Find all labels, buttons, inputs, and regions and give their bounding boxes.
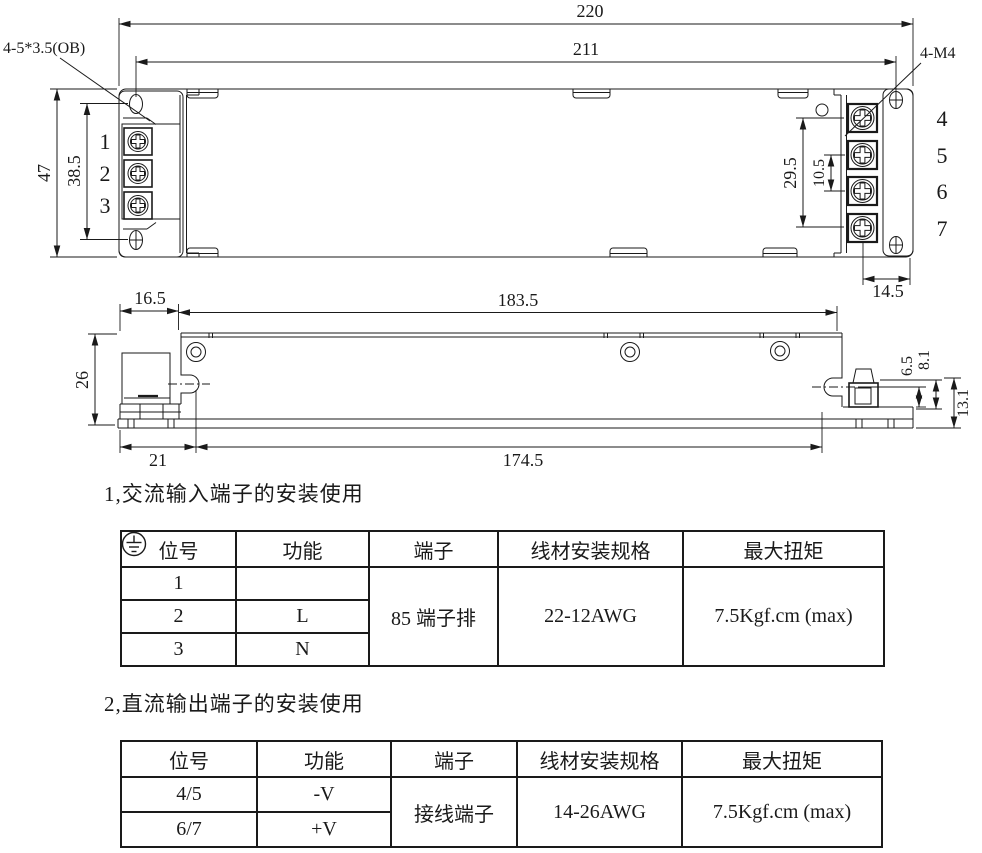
- svg-text:26: 26: [72, 371, 92, 389]
- col-header-terminal: 端子: [369, 531, 498, 567]
- position-cell: 3: [121, 633, 236, 666]
- svg-text:14.5: 14.5: [872, 281, 904, 301]
- svg-text:220: 220: [577, 1, 604, 21]
- screw-terminal-6: [851, 180, 874, 203]
- col-header-wire-spec: 线材安装规格: [517, 741, 682, 777]
- table-header-row: 位号 功能 端子 线材安装规格 最大扭矩: [121, 531, 884, 567]
- svg-text:38.5: 38.5: [64, 155, 84, 187]
- bottom-edge-tabs: [187, 248, 797, 257]
- svg-text:21: 21: [149, 450, 167, 470]
- side-input-housing: [120, 353, 181, 419]
- dim-211: 211: [136, 39, 896, 97]
- col-header-max-torque: 最大扭矩: [682, 741, 882, 777]
- dim-21: 21: [120, 390, 196, 470]
- function-cell: N: [236, 633, 369, 666]
- position-cell: 4/5: [121, 777, 257, 812]
- screw-terminal-5: [851, 144, 874, 167]
- col-header-terminal: 端子: [391, 741, 517, 777]
- dim-16-5: 16.5: [120, 288, 179, 331]
- section2-heading: 2,直流输出端子的安装使用: [104, 688, 364, 718]
- wire-spec-cell: 14-26AWG: [517, 777, 682, 847]
- svg-text:211: 211: [573, 39, 599, 59]
- dc-output-table: 位号 功能 端子 线材安装规格 最大扭矩 4/5 -V 接线端子 14-26AW…: [120, 740, 883, 848]
- col-header-position: 位号: [121, 741, 257, 777]
- table-row: 1 85 端子排 22-12AWG 7.5Kgf.cm (max): [121, 567, 884, 600]
- dim-38-5: 38.5: [64, 104, 128, 240]
- function-cell: -V: [257, 777, 391, 812]
- top-edge-tabs: [187, 89, 808, 98]
- dc-output-table-wrap: 位号 功能 端子 线材安装规格 最大扭矩 4/5 -V 接线端子 14-26AW…: [120, 740, 881, 846]
- col-header-function: 功能: [236, 531, 369, 567]
- top-view-drawing: 1 2 3: [3, 1, 956, 301]
- terminal-label-4: 4: [937, 106, 948, 131]
- side-view-drawing: 16.5 183.5 26 21 174.5 6.5: [72, 288, 972, 470]
- wire-spec-cell: 22-12AWG: [498, 567, 683, 666]
- dim-10-5: 10.5: [811, 155, 845, 191]
- terminal-label-6: 6: [937, 179, 948, 204]
- label-output-screws: 4-M4: [920, 45, 956, 62]
- label-input-holes: 4-5*3.5(OB): [3, 40, 85, 57]
- svg-text:183.5: 183.5: [498, 290, 539, 310]
- technical-drawing-page: 1 2 3: [0, 0, 982, 853]
- dim-174-5: 174.5: [196, 412, 822, 470]
- ac-input-table: 位号 功能 端子 线材安装规格 最大扭矩 1: [120, 530, 885, 667]
- col-header-wire-spec: 线材安装规格: [498, 531, 683, 567]
- earth-ground-icon: [120, 530, 148, 558]
- table-row: 4/5 -V 接线端子 14-26AWG 7.5Kgf.cm (max): [121, 777, 882, 812]
- position-cell: 6/7: [121, 812, 257, 847]
- svg-text:8.1: 8.1: [916, 350, 933, 370]
- output-terminal-block: 4 5 6 7: [848, 104, 948, 242]
- position-cell: 2: [121, 600, 236, 633]
- ac-input-table-wrap: 位号 功能 端子 线材安装规格 最大扭矩 1: [120, 530, 883, 666]
- terminal-type-cell: 85 端子排: [369, 567, 498, 666]
- screw-terminal-1: [128, 132, 148, 152]
- max-torque-cell: 7.5Kgf.cm (max): [683, 567, 884, 666]
- screw-terminal-4: [851, 107, 874, 130]
- svg-text:6.5: 6.5: [899, 356, 916, 376]
- function-earth-cell: [236, 567, 369, 600]
- drawing-canvas: 1 2 3: [0, 0, 982, 470]
- input-terminal-block: 1 2 3: [100, 124, 181, 219]
- pilot-hole: [816, 104, 828, 116]
- plate-screw-top: [890, 92, 903, 109]
- screw-terminal-3: [128, 196, 148, 216]
- svg-text:47: 47: [34, 164, 54, 182]
- terminal-label-1: 1: [100, 129, 111, 154]
- cover-screw-left: [187, 343, 206, 362]
- terminal-label-5: 5: [937, 143, 948, 168]
- terminal-label-7: 7: [937, 216, 948, 241]
- terminal-label-2: 2: [100, 161, 111, 186]
- cover-screw-right: [771, 342, 790, 361]
- table-header-row: 位号 功能 端子 线材安装规格 最大扭矩: [121, 741, 882, 777]
- col-header-function: 功能: [257, 741, 391, 777]
- position-cell: 1: [121, 567, 236, 600]
- screw-terminal-7: [851, 217, 874, 240]
- max-torque-cell: 7.5Kgf.cm (max): [682, 777, 882, 847]
- screw-terminal-2: [128, 164, 148, 184]
- side-chassis: [118, 333, 913, 428]
- svg-text:13.1: 13.1: [955, 389, 972, 417]
- svg-text:10.5: 10.5: [811, 159, 828, 187]
- dim-13-1: 13.1: [916, 378, 972, 428]
- dim-26: 26: [72, 334, 117, 425]
- dim-220: 220: [119, 1, 913, 86]
- svg-text:16.5: 16.5: [134, 288, 166, 308]
- svg-text:174.5: 174.5: [503, 450, 544, 470]
- terminal-label-3: 3: [100, 193, 111, 218]
- dim-183-5: 183.5: [179, 290, 838, 331]
- cover-screw-mid: [621, 343, 640, 362]
- function-cell: +V: [257, 812, 391, 847]
- plate-screw-bottom: [890, 237, 903, 254]
- bottom-flange: [118, 419, 913, 428]
- svg-text:29.5: 29.5: [780, 157, 800, 189]
- col-header-max-torque: 最大扭矩: [683, 531, 884, 567]
- function-cell: L: [236, 600, 369, 633]
- terminal-type-cell: 接线端子: [391, 777, 517, 847]
- dim-14-5: 14.5: [863, 242, 910, 301]
- section1-heading: 1,交流输入端子的安装使用: [104, 478, 364, 508]
